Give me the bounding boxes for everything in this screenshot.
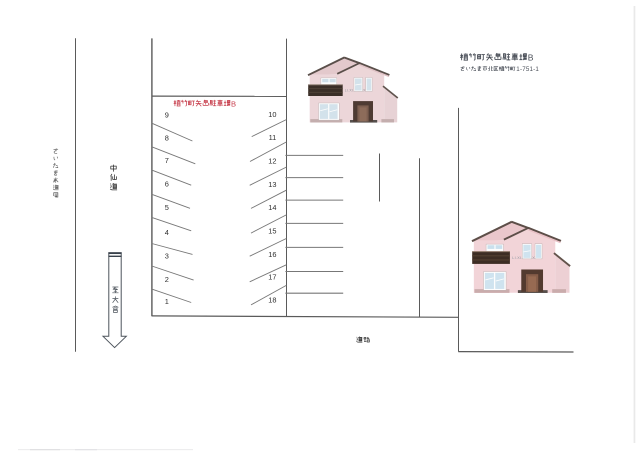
svg-text:B: B [528, 53, 534, 63]
svg-text:10: 10 [268, 110, 276, 119]
svg-text:1: 1 [165, 297, 169, 306]
svg-text:18: 18 [268, 295, 276, 304]
svg-text:13: 13 [268, 180, 276, 189]
svg-text:12: 12 [268, 156, 276, 165]
svg-text:11: 11 [269, 133, 277, 142]
svg-text:14: 14 [268, 203, 276, 212]
svg-text:16: 16 [268, 250, 276, 259]
svg-text:7: 7 [165, 156, 169, 165]
svg-text:5: 5 [165, 203, 169, 212]
svg-text:3: 3 [165, 252, 169, 261]
svg-text:15: 15 [268, 227, 276, 236]
svg-text:6: 6 [165, 179, 169, 188]
svg-text:B: B [231, 99, 236, 108]
svg-text:1-751-1: 1-751-1 [516, 66, 539, 73]
svg-text:8: 8 [165, 133, 169, 142]
svg-text:2: 2 [165, 275, 169, 284]
svg-text:4: 4 [165, 228, 169, 237]
svg-text:17: 17 [268, 272, 276, 281]
svg-text:9: 9 [165, 111, 169, 120]
